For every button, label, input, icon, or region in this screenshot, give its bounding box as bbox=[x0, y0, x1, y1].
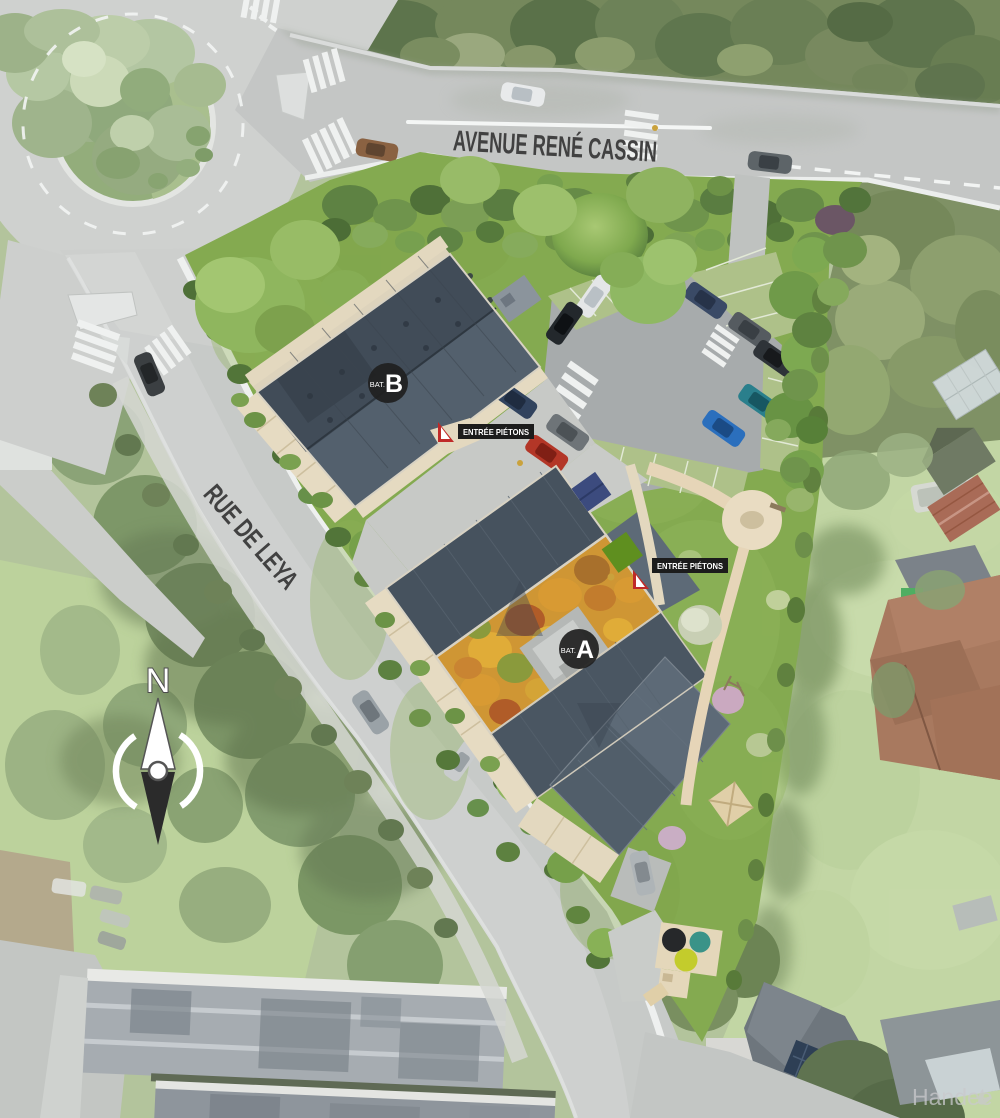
svg-text:BAT.: BAT. bbox=[561, 646, 576, 655]
svg-text:BAT.: BAT. bbox=[370, 380, 385, 389]
svg-text:ENTRÉE PIÉTONS: ENTRÉE PIÉTONS bbox=[657, 561, 723, 571]
svg-text:A: A bbox=[576, 636, 594, 664]
svg-text:ENTRÉE PIÉTONS: ENTRÉE PIÉTONS bbox=[463, 427, 529, 437]
svg-text:B: B bbox=[385, 370, 403, 398]
svg-text:N: N bbox=[146, 662, 171, 700]
